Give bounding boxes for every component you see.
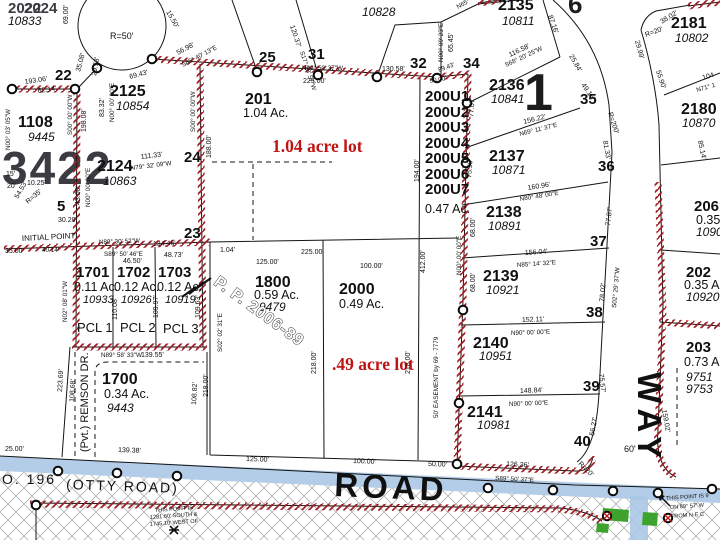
lot-account: 10891 (488, 219, 521, 233)
survey-monument-marker (654, 489, 663, 498)
survey-monument-marker (113, 469, 122, 478)
curve-radius-label: R=50' (110, 31, 134, 41)
lot-account: 9445 (28, 130, 55, 144)
bearing-label: N00° 00' 00"E (84, 168, 92, 207)
bearing-label: S00° 00' 00"W (66, 94, 74, 135)
dimension-label: 68.00' (470, 218, 477, 237)
survey-monument-marker (549, 486, 558, 495)
bearing-label: S00° 00' 00"W (189, 91, 197, 132)
point-number: 37 (590, 233, 607, 250)
acre-annotation: 1.04 acre lot (272, 136, 363, 156)
lot-account: 10871 (492, 163, 525, 177)
lot-account: 10951 (479, 349, 512, 363)
dimension-label: 50.00' (428, 461, 447, 469)
lot-acreage: 1.04 Ac. (243, 106, 288, 120)
dimension-label: 100.00' (353, 458, 376, 466)
bearing-label: N00° 00' 00"E (455, 236, 463, 275)
lot-account: 10933 (83, 294, 114, 306)
unit-lot-number: 200U5 (425, 150, 469, 167)
bearing-label: N00° 00' 00"E (108, 83, 116, 122)
survey-monument-marker (484, 484, 493, 493)
point-number: 31 (308, 46, 325, 63)
acre-annotation: .49 acre lot (332, 354, 414, 374)
bearing-label: N00° 03' 05"W (4, 109, 12, 150)
road-label: ROAD (334, 466, 449, 508)
lot-acreage: 0.47 Ac. (425, 202, 470, 216)
easement-label: 50' EASEMENT by 69 - 7779 (433, 336, 440, 418)
lot-number: 2124 (97, 158, 133, 175)
dimension-label: 110.08' (112, 298, 119, 320)
dimension-label: 25.00' (5, 446, 24, 453)
lot-acreage: 0.12 Ac. (157, 280, 202, 294)
dimension-label: 68.00' (470, 273, 477, 292)
lot-acreage: 0.11 Ac. (74, 280, 118, 294)
lot-account: 10926 (121, 294, 152, 306)
unit-lot-number: 200U7 (425, 181, 469, 198)
unit-lot-number: 200U3 (425, 119, 469, 136)
road-number-label: O. 196 (2, 471, 56, 487)
lot-account: 10919 (165, 294, 196, 306)
dimension-label: 218.00' (203, 374, 210, 397)
dimension-label: 10.25' (27, 180, 46, 187)
dimension-label: 125.00' (246, 456, 269, 464)
dimension-label: 40.14' (42, 247, 59, 254)
dimension-label: 43.00' (75, 186, 82, 205)
dimension-label: 20' (7, 183, 16, 190)
point-number: 39 (583, 378, 600, 395)
lot-number: 2181 (671, 15, 707, 32)
bearing-label: S02° 02' 31"E (216, 313, 224, 352)
lot-acreage: 0.12 Ac. (114, 280, 159, 294)
dimension-label: 65.45' (448, 33, 455, 52)
bearing-label: N90° 00' 00"E (511, 328, 550, 337)
unit-lot-number: 200U1 (425, 88, 469, 105)
point-number: 24 (184, 149, 201, 166)
dimension-label: 218.00' (311, 351, 318, 374)
bearing-label: N89° 58' 33"W (101, 351, 142, 359)
account-number: 10833 (8, 14, 42, 28)
survey-monument-marker (708, 485, 717, 494)
lot-number: 2000 (339, 281, 375, 298)
survey-monument-marker (148, 55, 157, 64)
survey-monument-marker (609, 487, 618, 496)
lot-account: 10920 (686, 290, 720, 304)
parcel-label: PCL 3 (163, 321, 199, 336)
dimension-label: 412.00' (420, 250, 427, 273)
lot-account: 10863 (103, 174, 137, 188)
dimension-label: 225.00' (301, 249, 324, 256)
dimension-label: 139.55' (141, 352, 164, 359)
point-number: 34 (463, 55, 480, 72)
survey-monument-marker (32, 501, 41, 510)
dimension-label: 108.82' (191, 382, 199, 405)
dimension-label: 126.36' (506, 461, 529, 469)
lot-account: 10854 (116, 99, 150, 113)
parcel-label: PCL 1 (77, 320, 113, 335)
lot-number: 2135 (498, 0, 534, 14)
lot-acreage: 0.49 Ac. (339, 297, 384, 311)
bearing-label: S89° 50' 46"E (104, 250, 143, 258)
plat-map: 2022 2024 10833 3422 1 6 (0, 0, 720, 540)
dimension-label: 134.46' (153, 240, 176, 248)
dimension-label: 130.58' (382, 66, 405, 73)
lot-account: 9753 (686, 382, 713, 396)
dimension-label: 83.32' (99, 98, 106, 117)
green-highlight (596, 523, 609, 533)
lot-number: 1703 (158, 264, 191, 281)
point-number: 23 (184, 225, 201, 242)
dimension-label: 139.38' (118, 447, 141, 455)
lot-account: 9443 (107, 401, 134, 415)
bearing-label: N89° 30' 52"W (99, 237, 140, 246)
lot-number: 203 (686, 339, 711, 356)
survey-monument-marker (253, 68, 262, 77)
parcel-label: PCL 2 (120, 320, 156, 335)
dimension-label: 109.63' (195, 295, 202, 318)
survey-monument-marker (459, 306, 468, 315)
lot-acreage: 0.73 A (684, 355, 720, 369)
lot-account: 10921 (486, 283, 519, 297)
dimension-label: 125.00' (256, 259, 279, 266)
remson-drive-label: (Pvt.) REMSON DR. (79, 352, 91, 452)
lot-number: 1700 (102, 371, 138, 388)
bearing-label: N00° 09' 23"E (437, 23, 445, 62)
plat-map-page: 2022 2024 10833 3422 1 6 (0, 0, 720, 540)
point-number: 38 (586, 304, 603, 321)
dimension-label: 108.68' (69, 379, 77, 402)
lot-account: 10802 (675, 31, 709, 45)
dimension-label: 109.97' (153, 295, 160, 318)
lot-number: 1702 (117, 264, 150, 281)
dimension-label: 30.20' (58, 217, 77, 224)
dimension-label: 218.00' (405, 351, 412, 374)
dimension-label: 46.50' (123, 258, 142, 265)
dimension-label: 198.08' (81, 109, 88, 132)
dimension-label: 100.00' (360, 263, 383, 270)
dimension-label: 152.11' (522, 316, 544, 324)
point-number: 25 (259, 49, 276, 66)
lot-account: 10841 (491, 92, 524, 106)
point-number: 32 (410, 55, 427, 72)
survey-monument-marker (453, 460, 462, 469)
lot-account: 10828 (362, 5, 396, 19)
dimension-label: 69.00' (63, 5, 70, 24)
dimension-label: 194.00' (414, 159, 421, 182)
dimension-label: 48.73' (164, 252, 183, 259)
point-number: 22 (55, 67, 72, 84)
green-highlight (642, 512, 658, 526)
dimension-label: 35.00' (5, 248, 24, 255)
bearing-label: N02° 08' 01"W (61, 281, 69, 322)
lot-number: 1108 (18, 114, 53, 131)
street-width-label: 60' (624, 444, 636, 454)
lot-account: 10981 (477, 418, 510, 432)
dimension-label: 15' (6, 171, 15, 178)
dimension-label: 223.69' (57, 369, 65, 392)
block-number-watermark: 6 (568, 0, 582, 19)
dimension-label: 1.04' (220, 247, 235, 254)
survey-monument-marker (455, 399, 464, 408)
dimension-label: 188.00' (206, 135, 213, 158)
bearing-label: N90° 00' 00"E (509, 399, 548, 408)
point-number: 5 (57, 198, 65, 215)
survey-monument-marker (71, 85, 80, 94)
dimension-label: 148.84' (520, 387, 543, 395)
lot-account: 10811 (502, 14, 534, 28)
survey-monument-marker (373, 73, 382, 82)
lot-acreage: 0.34 Ac. (104, 387, 149, 401)
lot-account: 1090 (696, 225, 720, 239)
survey-monument-marker (8, 85, 17, 94)
point-number: 36 (598, 158, 615, 175)
lot-number: 1701 (76, 264, 109, 281)
lot-account: 10870 (682, 116, 716, 130)
